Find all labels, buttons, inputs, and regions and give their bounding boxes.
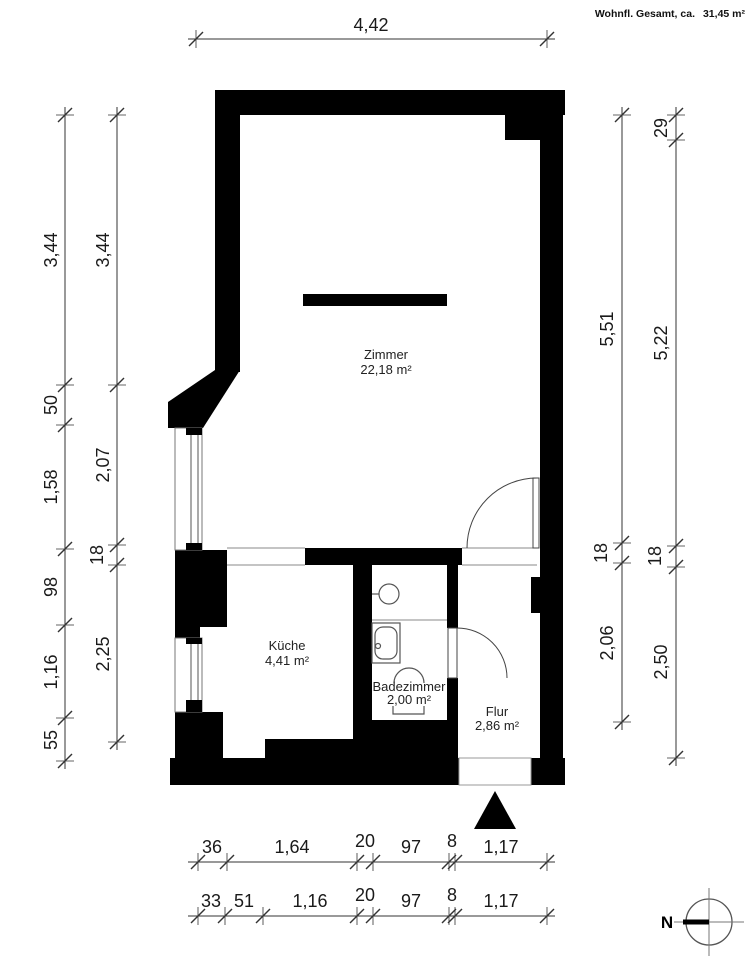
dimension-label: 20: [355, 885, 375, 905]
beam-zimmer: [303, 294, 447, 306]
dimension-label: 55: [41, 730, 61, 750]
bath-threshold-icon: [393, 706, 424, 714]
dimension-label: 18: [87, 545, 107, 565]
wall-bath-hall-lower: [447, 678, 458, 760]
dimension-label: 1,16: [292, 891, 327, 911]
wall-top: [215, 90, 565, 115]
dimension-label: 2,06: [597, 625, 617, 660]
total-area-value: 31,45 m²: [703, 8, 746, 20]
dimension-label: 1,16: [41, 654, 61, 689]
walls: [168, 90, 565, 785]
wall-left-diagonal: [168, 370, 240, 428]
dimension-label: 5,22: [651, 325, 671, 360]
dimension-label: 1,58: [41, 469, 61, 504]
dimension-label: 1,64: [274, 837, 309, 857]
dimension-label: 3,44: [93, 232, 113, 267]
room-area-label: 2,00 m²: [387, 692, 432, 707]
dimension-label: 36: [202, 837, 222, 857]
wall-zimmer-bottom: [305, 548, 462, 565]
dimension-label: 51: [234, 891, 254, 911]
dimension-label: 2,25: [93, 636, 113, 671]
wall-right-pier: [531, 577, 540, 613]
bathtub-icon: [372, 623, 400, 663]
dimension-label: 5,51: [597, 311, 617, 346]
window-icon: [175, 638, 202, 712]
dimension-label: 4,42: [353, 15, 388, 35]
header: Wohnfl. Gesamt, ca. 31,45 m²: [595, 8, 746, 20]
room-name-label: Zimmer: [364, 347, 409, 362]
room-labels: Zimmer 22,18 m² Küche 4,41 m² Badezimmer…: [265, 347, 520, 733]
floor-plan-page: 4,42 3,44 50 1,58 98 1,16 55 3,44 2,07 1…: [0, 0, 754, 960]
dimension-label: 29: [651, 118, 671, 138]
door-swing-icon: [467, 478, 539, 548]
entrance-door-opening: [459, 758, 531, 785]
dimension-label: 8: [447, 885, 457, 905]
room-name-label: Küche: [269, 638, 306, 653]
dimension-label: 3,44: [41, 232, 61, 267]
room-area-label: 4,41 m²: [265, 653, 310, 668]
window-icon: [175, 428, 202, 550]
wall-right: [540, 90, 563, 785]
washbasin-icon: [372, 584, 399, 604]
dimension-label: 33: [201, 891, 221, 911]
dimension-label: 50: [41, 395, 61, 415]
dimension-label: 98: [41, 577, 61, 597]
wall-left-upper: [215, 90, 240, 372]
total-area-label: Wohnfl. Gesamt, ca.: [595, 8, 695, 20]
dimension-label: 20: [355, 831, 375, 851]
dimension-label: 8: [447, 831, 457, 851]
room-area-label: 22,18 m²: [360, 362, 412, 377]
dimension-label: 2,50: [651, 644, 671, 679]
wall-left-between-windows: [175, 550, 227, 627]
dimension-label: 1,17: [483, 837, 518, 857]
room-name-label: Flur: [486, 704, 509, 719]
compass-icon: N: [661, 888, 744, 956]
entrance-arrow-icon: [474, 791, 516, 829]
dimension-label: 18: [645, 546, 665, 566]
wall-kitchen-bath: [353, 548, 372, 722]
dimension-label: 1,17: [483, 891, 518, 911]
door-swing-icon: [448, 628, 507, 678]
compass-north-label: N: [661, 913, 673, 932]
dimension-label: 97: [401, 891, 421, 911]
room-area-label: 2,86 m²: [475, 718, 520, 733]
dimension-label: 97: [401, 837, 421, 857]
dimension-label: 18: [591, 543, 611, 563]
wall-bath-bottom: [353, 720, 458, 760]
floor-plan: 4,42 3,44 50 1,58 98 1,16 55 3,44 2,07 1…: [0, 0, 754, 960]
dimension-label: 2,07: [93, 447, 113, 482]
wall-left-between-windows-2: [175, 627, 200, 638]
